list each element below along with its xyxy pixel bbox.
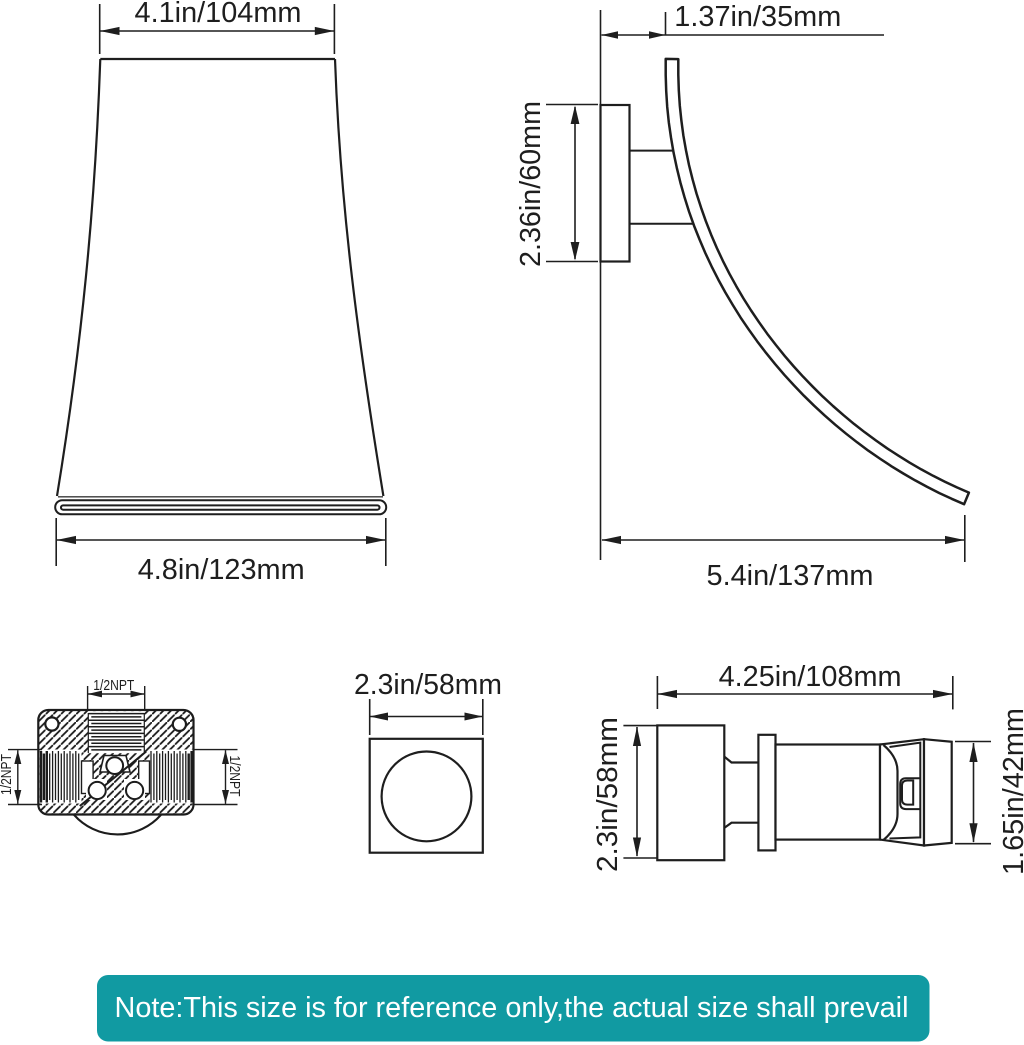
svg-text:2.3in/58mm: 2.3in/58mm [592, 717, 624, 872]
svg-text:1.37in/35mm: 1.37in/35mm [674, 1, 841, 33]
svg-text:1.65in/42mm: 1.65in/42mm [998, 708, 1024, 875]
svg-text:1/2NPT: 1/2NPT [0, 754, 15, 795]
svg-text:4.8in/123mm: 4.8in/123mm [138, 554, 305, 586]
svg-text:5.4in/137mm: 5.4in/137mm [707, 560, 874, 592]
svg-text:1/2NPT: 1/2NPT [226, 756, 243, 797]
svg-text:4.25in/108mm: 4.25in/108mm [719, 661, 902, 693]
svg-text:4.1in/104mm: 4.1in/104mm [135, 0, 302, 29]
svg-text:2.3in/58mm: 2.3in/58mm [354, 669, 502, 701]
svg-text:Note:This size is for referenc: Note:This size is for reference only,the… [115, 992, 909, 1024]
svg-text:2.36in/60mm: 2.36in/60mm [515, 101, 547, 267]
svg-text:1/2NPT: 1/2NPT [93, 677, 134, 694]
